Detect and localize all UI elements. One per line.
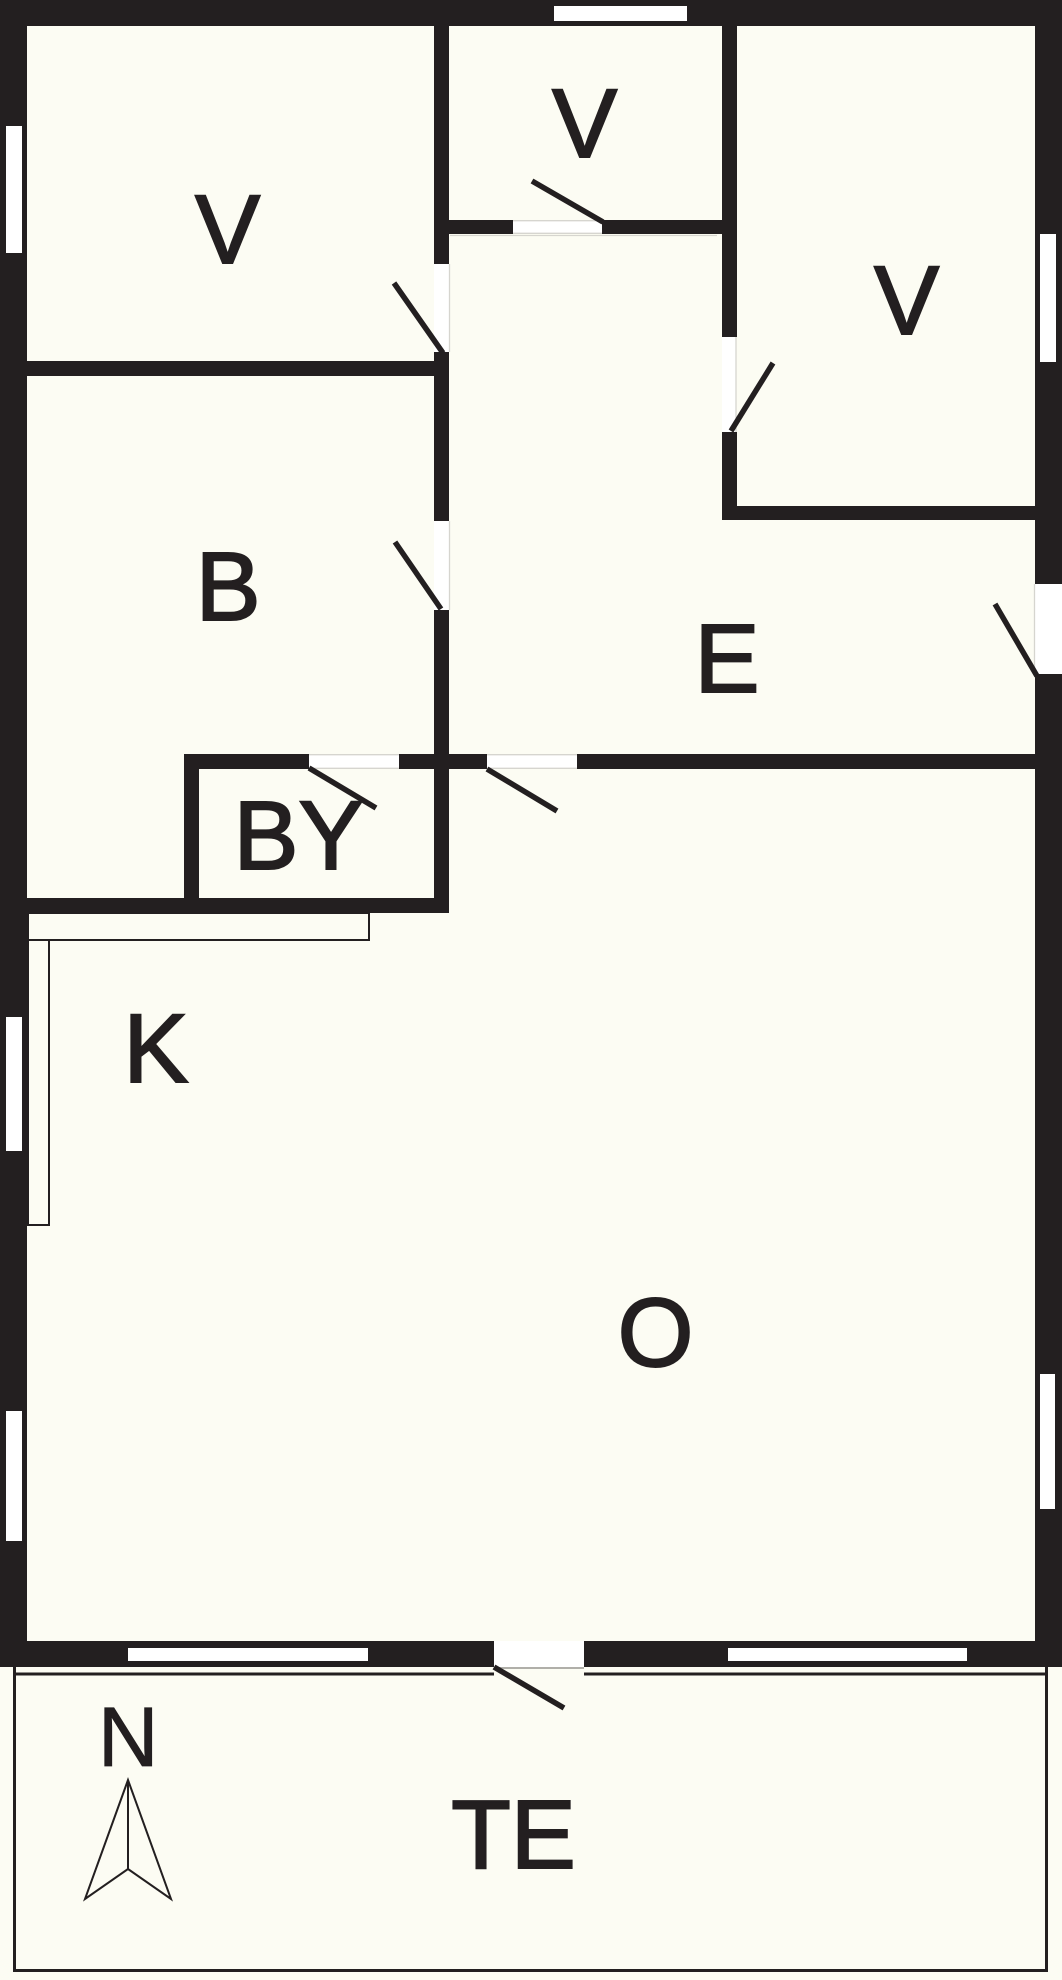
svg-text:BY: BY	[233, 781, 363, 890]
svg-text:K: K	[123, 994, 188, 1103]
svg-text:B: B	[196, 532, 261, 641]
svg-text:TE: TE	[451, 1780, 576, 1889]
svg-text:V: V	[552, 69, 617, 178]
svg-text:V: V	[874, 246, 939, 355]
svg-text:O: O	[618, 1278, 694, 1387]
svg-text:V: V	[195, 175, 260, 284]
svg-text:N: N	[98, 1690, 159, 1784]
svg-text:E: E	[694, 604, 759, 713]
